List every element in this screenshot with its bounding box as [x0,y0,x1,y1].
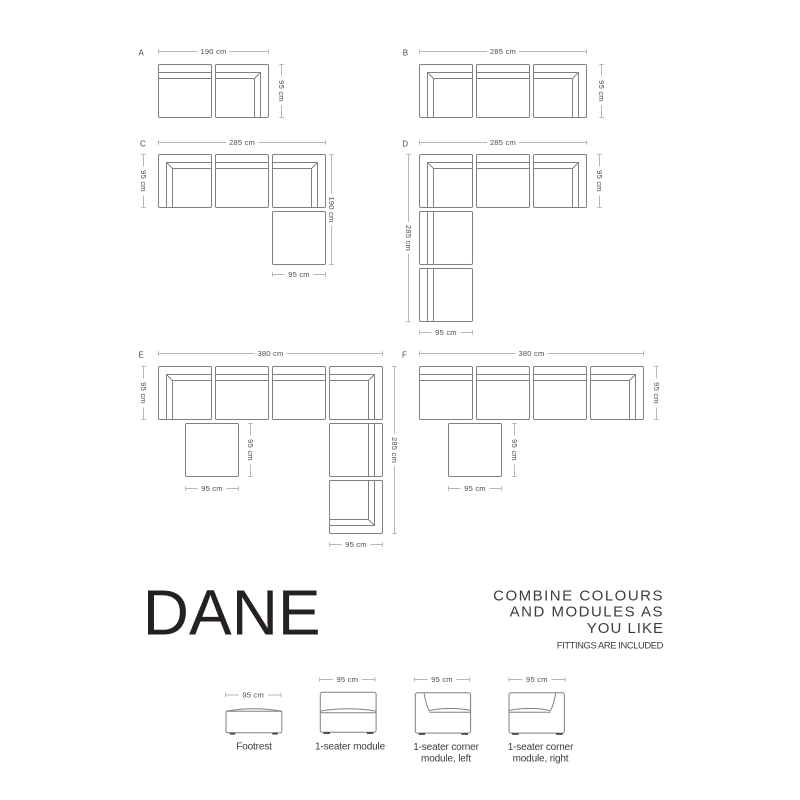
svg-text:285 cm: 285 cm [390,437,399,463]
svg-text:95 cm: 95 cm [431,675,453,684]
svg-text:95 cm: 95 cm [139,382,148,404]
svg-text:Footrest: Footrest [236,742,272,753]
svg-text:380 cm: 380 cm [518,349,544,358]
svg-text:380 cm: 380 cm [257,349,283,358]
svg-text:1-seater module: 1-seater module [315,741,386,752]
svg-text:FITTINGS ARE INCLUDED: FITTINGS ARE INCLUDED [557,639,664,650]
svg-text:95 cm: 95 cm [336,675,358,684]
svg-text:DANE: DANE [143,577,321,649]
svg-text:285 cm: 285 cm [404,225,413,251]
svg-text:95 cm: 95 cm [652,382,661,404]
svg-text:95 cm: 95 cm [595,170,604,192]
svg-text:D: D [402,140,408,149]
svg-text:C: C [140,140,146,149]
svg-text:95 cm: 95 cm [288,270,310,279]
svg-text:B: B [403,49,408,58]
svg-text:95 cm: 95 cm [277,80,286,102]
svg-text:A: A [139,49,145,58]
svg-text:AND MODULES AS: AND MODULES AS [510,604,664,621]
svg-text:E: E [139,351,144,360]
svg-text:95 cm: 95 cm [201,484,223,493]
svg-text:95 cm: 95 cm [435,328,457,337]
svg-text:95 cm: 95 cm [526,675,548,684]
svg-text:F: F [402,351,407,360]
svg-text:95 cm: 95 cm [510,439,519,461]
svg-text:95 cm: 95 cm [139,170,148,192]
svg-text:COMBINE COLOURS: COMBINE COLOURS [493,587,664,604]
svg-text:1-seater corner: 1-seater corner [508,742,574,753]
svg-text:95 cm: 95 cm [597,80,606,102]
svg-text:module, left: module, left [421,753,471,764]
svg-text:1-seater corner: 1-seater corner [413,742,479,753]
svg-text:95 cm: 95 cm [464,484,486,493]
svg-text:95 cm: 95 cm [246,439,255,461]
svg-text:190 cm: 190 cm [327,196,336,222]
svg-text:module, right: module, right [513,753,569,764]
svg-text:190 cm: 190 cm [200,47,226,56]
svg-text:285 cm: 285 cm [490,47,516,56]
svg-text:95 cm: 95 cm [242,691,264,700]
svg-text:95 cm: 95 cm [345,540,367,549]
svg-text:285 cm: 285 cm [229,138,255,147]
svg-text:285 cm: 285 cm [490,138,516,147]
svg-text:YOU LIKE: YOU LIKE [587,620,664,637]
